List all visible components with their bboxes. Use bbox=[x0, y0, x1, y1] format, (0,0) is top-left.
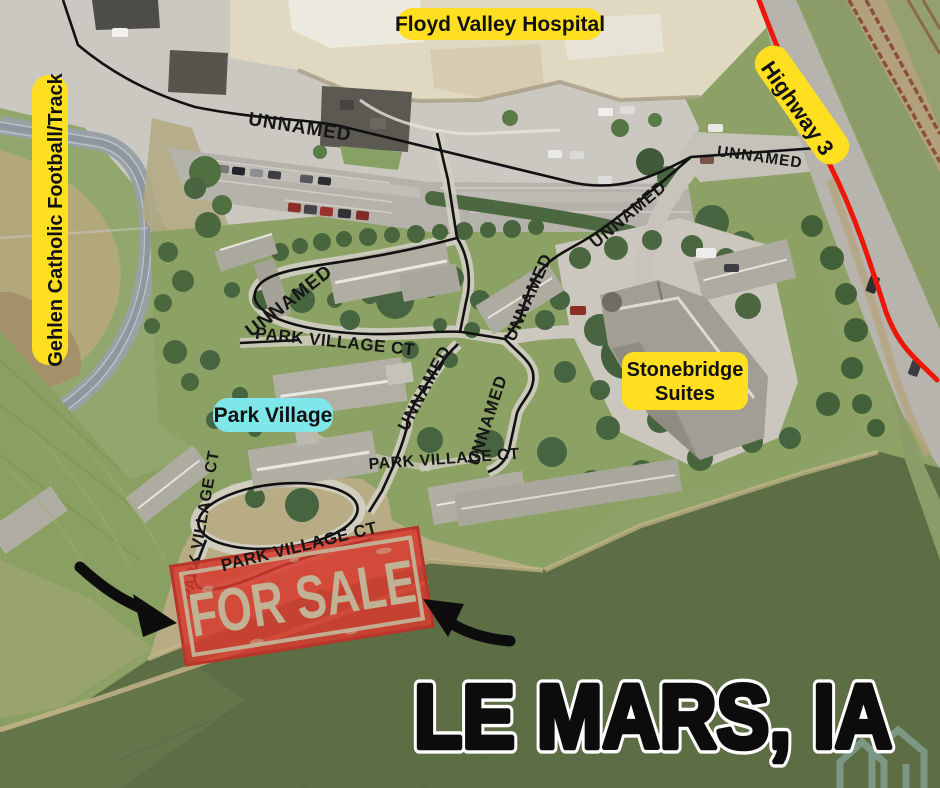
svg-text:Stonebridge: Stonebridge bbox=[627, 359, 744, 381]
svg-text:Floyd Valley Hospital: Floyd Valley Hospital bbox=[395, 13, 605, 36]
svg-text:LE MARS, IA: LE MARS, IA bbox=[414, 666, 892, 766]
svg-text:Park Village: Park Village bbox=[214, 404, 333, 427]
svg-text:Gehlen Catholic Football/Track: Gehlen Catholic Football/Track bbox=[45, 72, 67, 366]
svg-text:Suites: Suites bbox=[655, 383, 715, 405]
